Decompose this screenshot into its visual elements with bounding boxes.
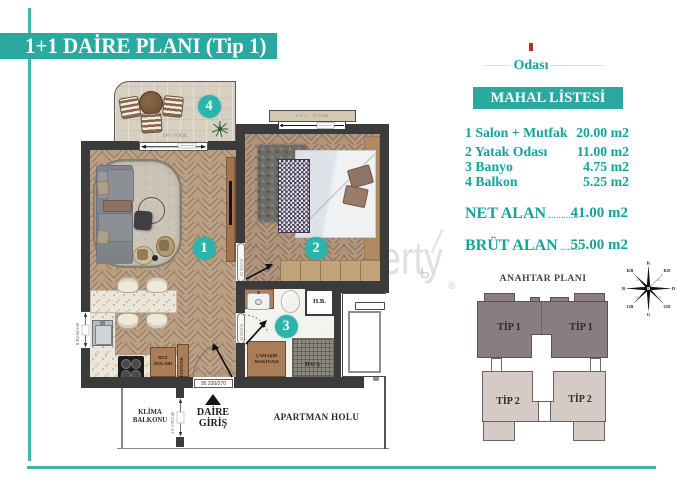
svg-text:xxx: xxx bbox=[635, 295, 640, 299]
svg-text:xxx: xxx bbox=[635, 278, 640, 282]
svg-text:B: B bbox=[622, 286, 625, 291]
svg-text:K: K bbox=[647, 261, 651, 266]
svg-text:GB: GB bbox=[627, 304, 634, 309]
svg-text:KB: KB bbox=[627, 268, 634, 273]
svg-text:KD: KD bbox=[664, 268, 672, 273]
svg-text:GD: GD bbox=[664, 304, 672, 309]
svg-text:G: G bbox=[647, 312, 651, 316]
svg-text:xxx: xxx bbox=[656, 278, 661, 282]
svg-text:D: D bbox=[672, 286, 676, 291]
svg-text:xxx: xxx bbox=[656, 295, 661, 299]
